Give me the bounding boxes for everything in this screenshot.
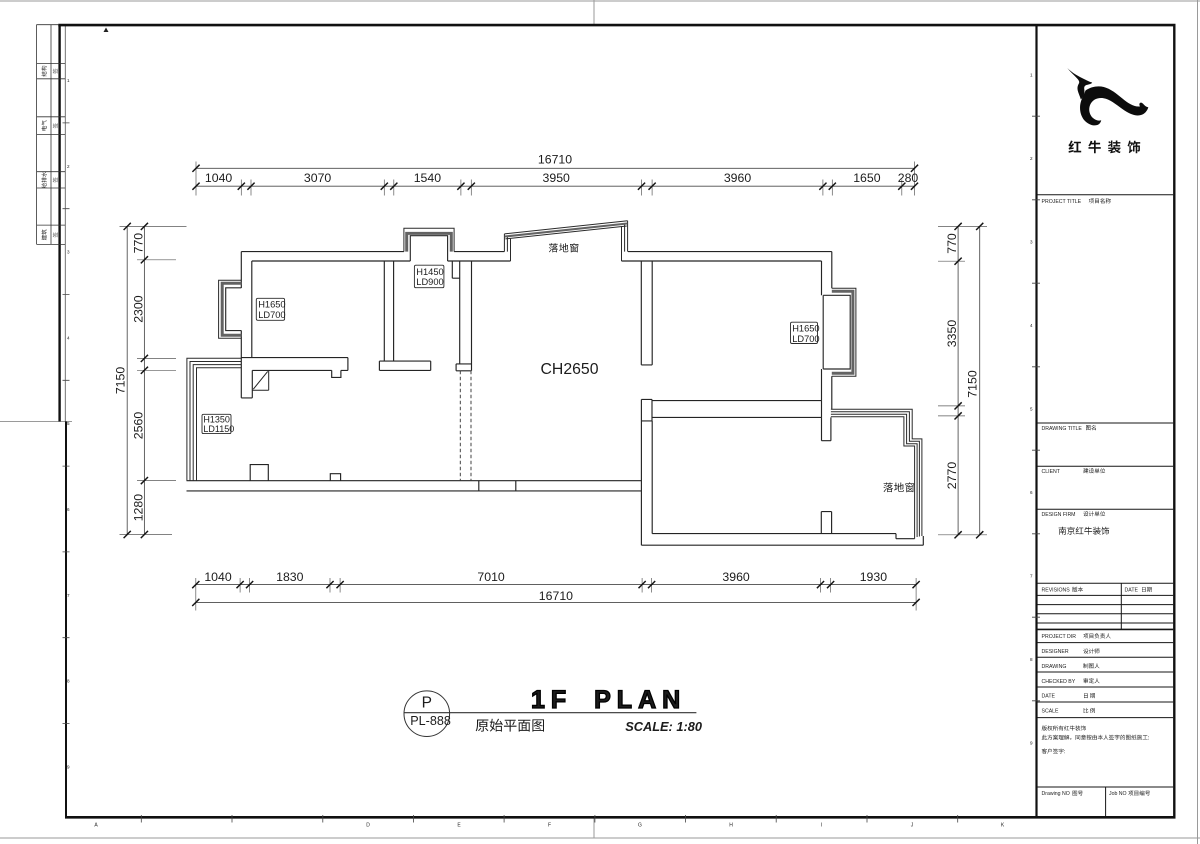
- svg-text:REVISIONS: REVISIONS: [1042, 588, 1071, 594]
- svg-text:4: 4: [67, 335, 70, 340]
- svg-text:LD900: LD900: [416, 277, 443, 287]
- svg-text:3960: 3960: [724, 171, 752, 185]
- svg-text:2: 2: [1030, 156, 1033, 161]
- svg-text:2560: 2560: [131, 412, 145, 440]
- svg-text:H1450: H1450: [416, 267, 443, 277]
- svg-text:1280: 1280: [131, 494, 145, 522]
- svg-text:DESIGNER: DESIGNER: [1042, 649, 1069, 655]
- svg-text:LD700: LD700: [792, 334, 819, 344]
- svg-text:7: 7: [1030, 574, 1033, 579]
- svg-text:SCALE: 1:80: SCALE: 1:80: [625, 719, 702, 734]
- svg-text:280: 280: [898, 171, 919, 185]
- svg-text:7150: 7150: [966, 370, 980, 398]
- svg-text:DESIGN FIRM: DESIGN FIRM: [1042, 512, 1076, 518]
- svg-text:1650: 1650: [853, 171, 881, 185]
- svg-text:7010: 7010: [477, 570, 505, 584]
- svg-text:1540: 1540: [414, 171, 442, 185]
- svg-text:LD1150: LD1150: [203, 424, 234, 434]
- svg-text:DRAWING: DRAWING: [1042, 664, 1067, 670]
- svg-text:3950: 3950: [543, 171, 571, 185]
- svg-text:2: 2: [67, 164, 70, 169]
- svg-text:CLIENT: CLIENT: [1042, 469, 1061, 475]
- svg-text:G: G: [638, 823, 642, 829]
- svg-text:Drawing NO: Drawing NO: [1042, 791, 1070, 797]
- svg-text:Job NO: Job NO: [1109, 791, 1127, 797]
- svg-text:DATE: DATE: [1042, 694, 1056, 700]
- svg-text:2770: 2770: [945, 462, 959, 490]
- svg-text:7: 7: [67, 593, 70, 598]
- svg-text:9: 9: [67, 764, 70, 769]
- svg-text:16710: 16710: [539, 589, 573, 603]
- svg-text:7150: 7150: [113, 367, 127, 395]
- svg-text:1: 1: [1030, 73, 1033, 78]
- svg-text:4: 4: [1030, 323, 1033, 328]
- svg-text:K: K: [1001, 823, 1005, 829]
- svg-text:1: 1: [67, 78, 70, 83]
- svg-text:F: F: [548, 823, 551, 829]
- svg-text:770: 770: [945, 233, 959, 254]
- svg-text:1040: 1040: [205, 171, 233, 185]
- svg-text:1830: 1830: [276, 570, 304, 584]
- svg-text:H1650: H1650: [792, 324, 819, 334]
- svg-text:3960: 3960: [722, 570, 750, 584]
- svg-text:1040: 1040: [204, 570, 232, 584]
- svg-text:I: I: [821, 823, 822, 829]
- svg-text:8: 8: [1030, 657, 1033, 662]
- svg-text:1F PLAN: 1F PLAN: [531, 686, 686, 714]
- svg-text:J: J: [911, 823, 914, 829]
- svg-text:P: P: [422, 695, 432, 712]
- svg-text:770: 770: [131, 233, 145, 254]
- svg-text:6: 6: [67, 507, 70, 512]
- svg-text:E: E: [457, 823, 461, 829]
- svg-text:H1650: H1650: [258, 300, 285, 310]
- svg-text:PL-888: PL-888: [410, 714, 451, 728]
- svg-text:CHECKED BY: CHECKED BY: [1042, 679, 1076, 685]
- svg-text:16710: 16710: [538, 152, 572, 166]
- svg-text:H: H: [729, 823, 733, 829]
- svg-text:DRAWING TITLE: DRAWING TITLE: [1042, 426, 1083, 432]
- svg-text:3: 3: [67, 250, 70, 255]
- svg-text:5: 5: [1030, 407, 1033, 412]
- svg-text:9: 9: [1030, 741, 1033, 746]
- svg-text:LD700: LD700: [258, 310, 285, 320]
- svg-text:5: 5: [67, 421, 70, 426]
- svg-text:PROJECT DIR: PROJECT DIR: [1042, 634, 1077, 640]
- svg-text:PROJECT TITLE: PROJECT TITLE: [1042, 199, 1082, 205]
- svg-text:A: A: [94, 823, 98, 829]
- svg-text:DATE: DATE: [1125, 588, 1139, 594]
- svg-text:CH2650: CH2650: [541, 361, 599, 378]
- svg-text:6: 6: [1030, 490, 1033, 495]
- svg-text:D: D: [366, 823, 370, 829]
- svg-text:3070: 3070: [304, 171, 332, 185]
- svg-text:3: 3: [1030, 240, 1033, 245]
- svg-text:1930: 1930: [860, 570, 888, 584]
- svg-text:2300: 2300: [131, 295, 145, 323]
- svg-text:SCALE: SCALE: [1042, 709, 1060, 715]
- svg-text:8: 8: [67, 679, 70, 684]
- svg-text:3350: 3350: [945, 320, 959, 348]
